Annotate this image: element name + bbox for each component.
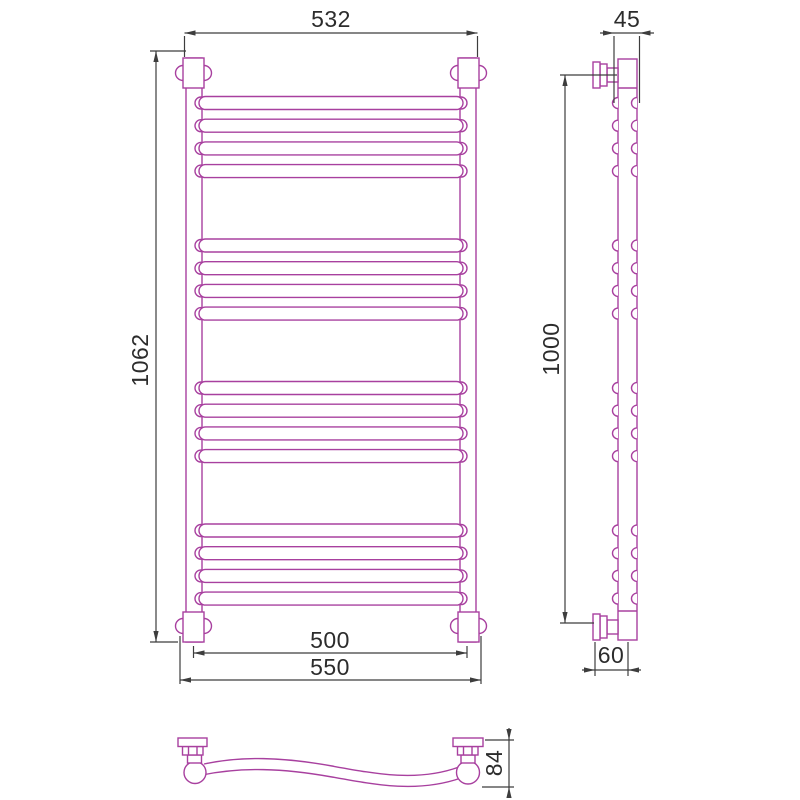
rung xyxy=(199,262,463,275)
bottom-view-bracket-right xyxy=(453,738,483,763)
rung xyxy=(199,97,463,110)
side-view xyxy=(593,59,637,640)
dim-label-1062: 1062 xyxy=(127,333,153,386)
side-rung-bump xyxy=(632,166,638,177)
rung xyxy=(199,119,463,132)
rung-wave-bottom-edge xyxy=(202,770,461,787)
side-rung-bump xyxy=(632,570,638,581)
side-rung-bump xyxy=(632,98,638,109)
side-rung-bump xyxy=(632,143,638,154)
dim-1062: 1062 xyxy=(127,51,186,642)
drawing-canvas: 532 1062 500 550 xyxy=(0,0,800,800)
side-rung-bump xyxy=(613,240,619,251)
bracket-flange xyxy=(453,738,483,747)
side-rung-bump xyxy=(613,593,619,604)
rung xyxy=(199,427,463,440)
side-rung-bump xyxy=(632,285,638,296)
rung xyxy=(199,284,463,297)
side-rung-bump xyxy=(613,120,619,131)
side-rung-bump xyxy=(632,451,638,462)
mount-collar xyxy=(600,616,607,638)
dim-label-500: 500 xyxy=(310,627,350,653)
front-bracket-top-left xyxy=(176,58,212,88)
side-rung-bump xyxy=(613,570,619,581)
dim-84: 84 xyxy=(481,728,514,798)
side-rung-bump xyxy=(632,240,638,251)
bracket-body xyxy=(183,612,204,642)
dim-label-532: 532 xyxy=(311,6,351,32)
rung xyxy=(199,142,463,155)
side-rung-bump xyxy=(613,383,619,394)
bracket-flange xyxy=(178,738,207,747)
side-rung-bump xyxy=(613,525,619,536)
side-rung-bump xyxy=(632,548,638,559)
rung xyxy=(199,450,463,463)
left-rail-section xyxy=(184,762,206,784)
bracket-nut xyxy=(183,747,204,756)
side-rung-bump xyxy=(632,405,638,416)
towel-rail-drawing: 532 1062 500 550 xyxy=(0,0,800,800)
rung xyxy=(199,569,463,582)
rung xyxy=(199,547,463,560)
dim-label-60: 60 xyxy=(598,642,625,668)
dim-label-1000: 1000 xyxy=(538,322,564,375)
dim-60: 60 xyxy=(582,642,641,676)
front-view xyxy=(176,58,487,642)
bracket-neck xyxy=(461,755,475,763)
mount-flange xyxy=(593,614,600,640)
side-rung-bump xyxy=(613,428,619,439)
side-rung-bump xyxy=(613,308,619,319)
side-rung-bump xyxy=(613,285,619,296)
dim-label-45: 45 xyxy=(614,6,641,32)
side-rung-bump xyxy=(613,143,619,154)
bracket-body xyxy=(458,58,479,88)
side-rung-bump xyxy=(613,405,619,416)
side-rung-bump xyxy=(632,308,638,319)
side-rung-bump xyxy=(632,263,638,274)
bottom-view-bracket-left xyxy=(178,738,207,763)
front-bracket-bottom-left xyxy=(176,612,212,642)
bracket-body xyxy=(183,58,204,88)
rung xyxy=(199,165,463,178)
dim-1000: 1000 xyxy=(538,75,617,623)
rung xyxy=(199,239,463,252)
front-bracket-top-right xyxy=(451,58,487,88)
rung xyxy=(199,592,463,605)
rung xyxy=(199,404,463,417)
side-rung-bump xyxy=(613,98,619,109)
dim-532: 532 xyxy=(185,6,478,57)
side-rung-bump xyxy=(632,593,638,604)
side-rung-bump xyxy=(632,120,638,131)
bottom-view xyxy=(178,738,483,786)
side-rung-bump xyxy=(632,525,638,536)
bracket-nut xyxy=(458,747,479,756)
bracket-neck xyxy=(188,755,202,763)
side-rung-bump xyxy=(613,166,619,177)
right-rail-section xyxy=(457,761,480,784)
dim-label-84: 84 xyxy=(481,750,507,777)
bracket-body xyxy=(458,612,479,642)
front-rungs xyxy=(195,97,467,606)
dim-label-550: 550 xyxy=(310,654,350,680)
rung xyxy=(199,382,463,395)
side-rung-bump xyxy=(632,383,638,394)
side-rung-bump xyxy=(613,451,619,462)
mount-stem xyxy=(607,620,618,634)
side-rung-bump xyxy=(632,428,638,439)
side-rung-bump xyxy=(613,548,619,559)
side-rung-bump xyxy=(613,263,619,274)
rung-wave-top-edge xyxy=(204,759,459,776)
side-mount-bottom xyxy=(593,614,618,640)
rung xyxy=(199,307,463,320)
rung xyxy=(199,524,463,537)
